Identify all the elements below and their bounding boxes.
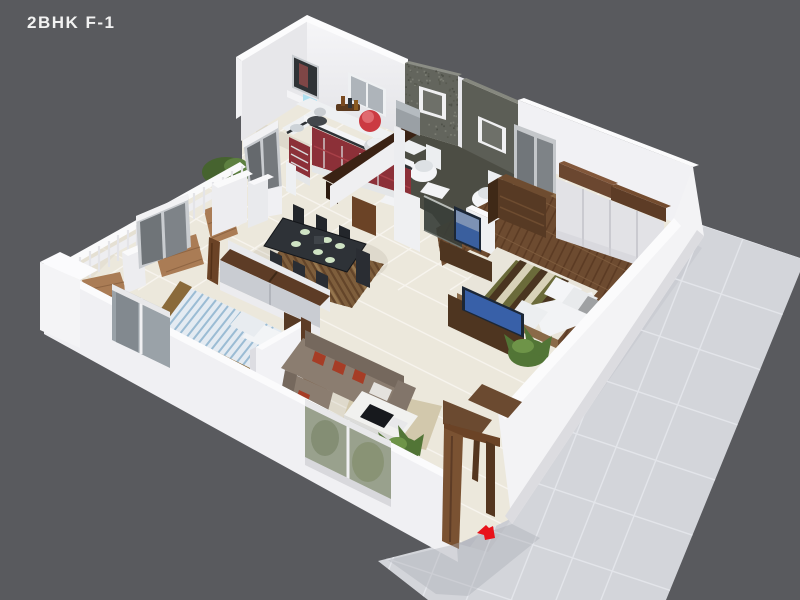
svg-text:2BHK F-1: 2BHK F-1 xyxy=(27,13,116,32)
